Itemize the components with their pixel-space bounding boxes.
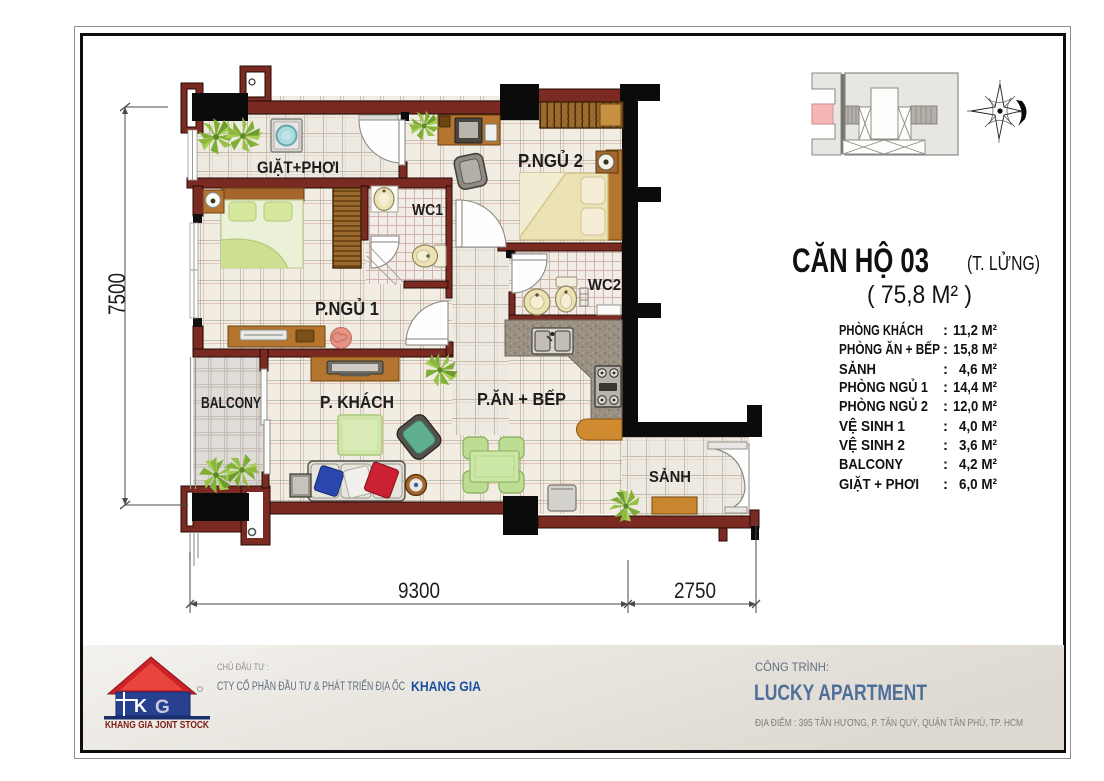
svg-text:G: G <box>155 697 170 718</box>
svg-text:4,0 M²: 4,0 M² <box>959 418 997 435</box>
svg-text:PHÒNG KHÁCH: PHÒNG KHÁCH <box>839 321 923 339</box>
svg-text::: : <box>943 418 948 435</box>
svg-text:14,4 M²: 14,4 M² <box>953 379 997 396</box>
svg-text:CÔNG TRÌNH:: CÔNG TRÌNH: <box>755 659 829 674</box>
svg-text:3,6 M²: 3,6 M² <box>959 437 997 454</box>
svg-text:( 75,8 M² ): ( 75,8 M² ) <box>867 281 972 309</box>
svg-text::: : <box>943 379 948 396</box>
svg-text:WC2: WC2 <box>588 277 621 294</box>
svg-text:9300: 9300 <box>398 578 440 603</box>
svg-text:2750: 2750 <box>674 578 716 603</box>
svg-text:PHÒNG ĂN + BẾP: PHÒNG ĂN + BẾP <box>839 340 940 358</box>
svg-text:VỆ SINH 2: VỆ SINH 2 <box>839 436 905 454</box>
svg-text::: : <box>943 456 948 473</box>
svg-text:PHÒNG NGỦ 2: PHÒNG NGỦ 2 <box>839 397 928 415</box>
svg-text:12,0 M²: 12,0 M² <box>953 398 997 415</box>
svg-text:PHÒNG NGỦ 1: PHÒNG NGỦ 1 <box>839 378 928 396</box>
svg-text:P.NGỦ 1: P.NGỦ 1 <box>315 298 379 319</box>
svg-text::: : <box>943 476 948 493</box>
svg-text::: : <box>943 361 948 378</box>
svg-text:SẢNH: SẢNH <box>839 361 876 378</box>
svg-text:ĐỊA ĐIỂM : 395 TÂN HƯƠNG, P. T: ĐỊA ĐIỂM : 395 TÂN HƯƠNG, P. TÂN QUÝ, QU… <box>755 716 1023 729</box>
svg-text:LUCKY APARTMENT: LUCKY APARTMENT <box>754 680 927 705</box>
svg-text:7500: 7500 <box>104 273 131 315</box>
svg-text:11,2 M²: 11,2 M² <box>953 322 997 339</box>
svg-text::: : <box>943 437 948 454</box>
svg-text:15,8 M²: 15,8 M² <box>953 341 997 358</box>
svg-text:K: K <box>134 696 147 716</box>
svg-text:KHANG GIA: KHANG GIA <box>411 679 481 694</box>
svg-text:CTY CỔ PHẦN ĐẦU TƯ & PHÁT TRIỂ: CTY CỔ PHẦN ĐẦU TƯ & PHÁT TRIỂN ĐỊA ỐC <box>217 679 405 693</box>
svg-text:BALCONY: BALCONY <box>839 456 903 473</box>
svg-text:4,6 M²: 4,6 M² <box>959 361 997 378</box>
svg-text::: : <box>943 398 948 415</box>
svg-text::: : <box>943 341 948 358</box>
svg-text:4,2 M²: 4,2 M² <box>959 456 997 473</box>
svg-text:P.ĂN + BẾP: P.ĂN + BẾP <box>477 388 566 409</box>
svg-text:GIẶT+PHƠI: GIẶT+PHƠI <box>257 158 339 177</box>
svg-text:GIẶT + PHƠI: GIẶT + PHƠI <box>839 476 919 493</box>
svg-text:BALCONY: BALCONY <box>201 395 261 412</box>
svg-text:CHỦ ĐẦU TƯ :: CHỦ ĐẦU TƯ : <box>217 661 269 673</box>
svg-text:6,0 M²: 6,0 M² <box>959 476 997 493</box>
svg-text:SẢNH: SẢNH <box>649 469 691 486</box>
svg-text:(T. LỬNG): (T. LỬNG) <box>967 251 1040 275</box>
svg-text:P.NGỦ 2: P.NGỦ 2 <box>518 150 583 171</box>
svg-text:CĂN HỘ 03: CĂN HỘ 03 <box>792 241 929 280</box>
svg-text:P. KHÁCH: P. KHÁCH <box>320 391 394 412</box>
svg-text:VỆ SINH 1: VỆ SINH 1 <box>839 417 905 435</box>
svg-text::: : <box>943 322 948 339</box>
svg-text:KHANG GIA JONT STOCK: KHANG GIA JONT STOCK <box>105 720 210 731</box>
svg-text:WC1: WC1 <box>412 202 443 219</box>
